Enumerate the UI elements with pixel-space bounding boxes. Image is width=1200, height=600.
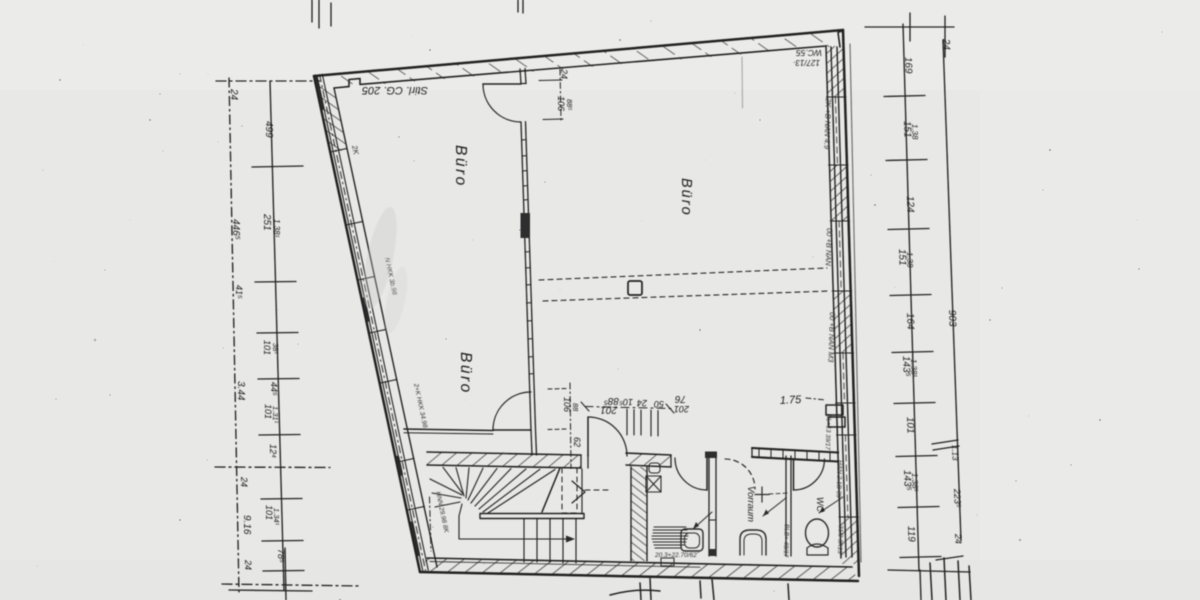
svg-text:24: 24 <box>940 38 951 51</box>
svg-text:2K +B NAN 4.9: 2K +B NAN 4.9 <box>822 97 833 150</box>
svg-text:24: 24 <box>637 398 648 408</box>
svg-text:127/13·: 127/13· <box>793 58 820 67</box>
svg-text:78⁵: 78⁵ <box>276 549 286 563</box>
svg-text:903: 903 <box>946 310 958 327</box>
svg-text:10⁵: 10⁵ <box>619 397 633 407</box>
svg-text:101: 101 <box>904 417 916 434</box>
svg-text:124: 124 <box>904 196 916 213</box>
svg-text:164: 164 <box>904 313 916 330</box>
svg-text:BL+13 39/17: BL+13 39/17 <box>824 414 832 451</box>
svg-text:Büro: Büro <box>452 145 469 188</box>
svg-text:251: 251 <box>261 213 272 231</box>
svg-text:12⁴: 12⁴ <box>268 444 278 458</box>
svg-text:24: 24 <box>243 559 253 570</box>
svg-text:24: 24 <box>239 476 249 487</box>
svg-text:1.34¹: 1.34¹ <box>272 508 281 526</box>
svg-text:1.75: 1.75 <box>780 394 803 407</box>
svg-text:00 +B NAN: 00 +B NAN <box>824 228 834 267</box>
svg-text:1.31¹: 1.31¹ <box>271 406 280 424</box>
svg-text:106: 106 <box>562 397 572 412</box>
svg-text:44⁵: 44⁵ <box>269 382 279 396</box>
svg-text:WC: WC <box>815 497 825 512</box>
svg-text:20.3+22.70/62˝: 20.3+22.70/62˝ <box>654 551 700 559</box>
svg-text:Büro: Büro <box>457 352 474 395</box>
svg-text:9.16: 9.16 <box>241 515 252 535</box>
svg-text:76: 76 <box>674 393 686 404</box>
svg-text:50: 50 <box>654 399 664 409</box>
svg-text:Büro: Büro <box>678 178 694 217</box>
svg-text:1.38¹: 1.38¹ <box>909 359 919 378</box>
svg-text:62: 62 <box>572 437 582 447</box>
svg-text:00 +B NAN M3: 00 +B NAN M3 <box>826 312 837 363</box>
svg-text:201: 201 <box>600 404 618 415</box>
svg-text:Vorraum: Vorraum <box>745 486 756 522</box>
svg-text:24: 24 <box>559 68 569 79</box>
svg-text:101: 101 <box>262 340 272 355</box>
svg-text:169: 169 <box>902 57 914 74</box>
svg-text:88: 88 <box>571 403 580 412</box>
svg-text:223⁵: 223⁵ <box>952 488 963 508</box>
svg-text:1.13: 1.13 <box>950 445 960 461</box>
svg-text:1.38⁵: 1.38⁵ <box>910 473 920 493</box>
svg-text:201: 201 <box>674 404 690 414</box>
svg-text:41⁵: 41⁵ <box>234 285 244 299</box>
svg-text:499: 499 <box>263 121 274 138</box>
svg-text:3.44: 3.44 <box>235 381 246 401</box>
svg-text:Stirl. CG. 205: Stirl. CG. 205 <box>361 84 428 96</box>
svg-text:WC.55: WC.55 <box>796 48 822 58</box>
svg-text:31/2 3K13: 31/2 3K13 <box>836 525 844 554</box>
svg-text:BLB+ 48/17: BLB+ 48/17 <box>782 524 790 558</box>
svg-text:1.38: 1.38 <box>905 252 915 268</box>
svg-text:1.38: 1.38 <box>910 124 920 140</box>
svg-text:106: 106 <box>556 96 566 111</box>
svg-text:119: 119 <box>905 526 917 543</box>
svg-text:88⁵: 88⁵ <box>565 99 574 111</box>
svg-text:1.38¹: 1.38¹ <box>272 219 281 238</box>
svg-text:38¹: 38¹ <box>271 343 280 354</box>
svg-text:24: 24 <box>228 88 239 101</box>
svg-text:24: 24 <box>953 533 963 544</box>
svg-text:446⁵: 446⁵ <box>230 219 241 240</box>
svg-text:HAN 2.1B 09: HAN 2.1B 09 <box>835 460 843 499</box>
